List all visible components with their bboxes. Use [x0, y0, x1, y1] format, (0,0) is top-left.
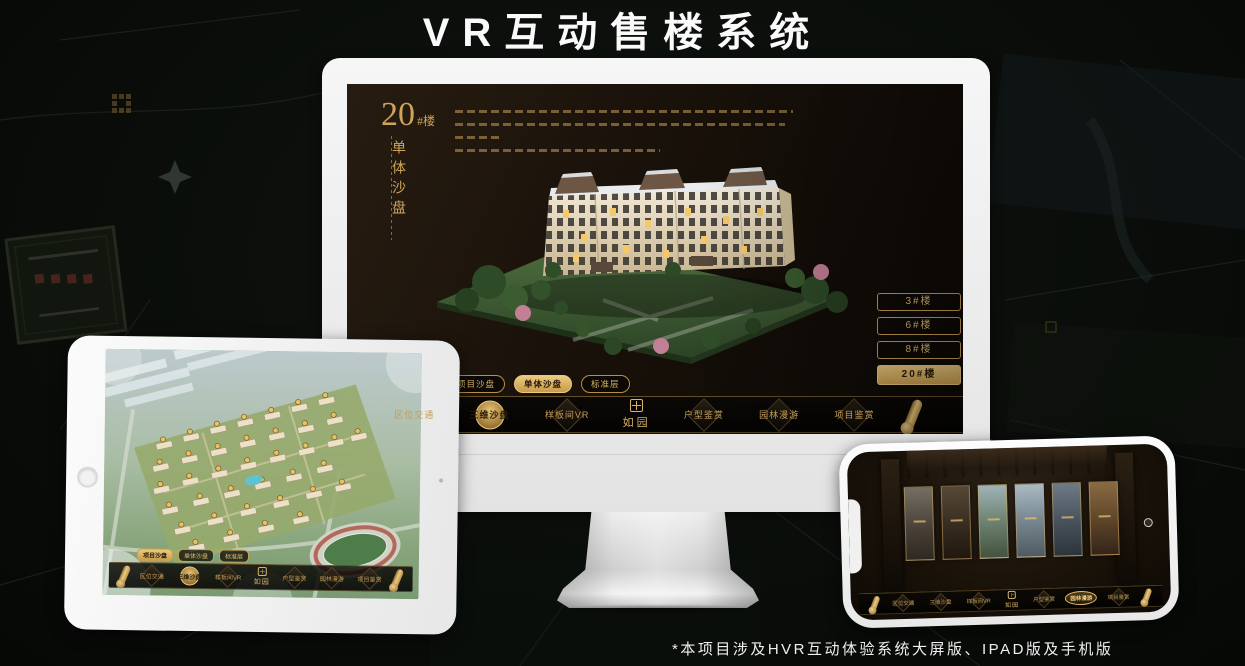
scene-card[interactable]	[941, 485, 972, 560]
scene-card[interactable]	[978, 484, 1009, 559]
scene-card-gallery	[904, 481, 1120, 561]
tab-single-building-sandbox[interactable]: 单体沙盘	[514, 375, 572, 393]
tab-standard-floor[interactable]: 标准层	[581, 375, 630, 393]
phone-camera-icon	[1144, 518, 1153, 527]
floor-button-20[interactable]: 20#楼	[877, 365, 961, 385]
tablet-tab-single-building-sandbox[interactable]: 单体沙盘	[178, 549, 214, 563]
nav-item-floorplans[interactable]: 户型鉴赏	[682, 404, 726, 425]
tablet-nav-item-showroom-vr[interactable]: 样板间VR	[214, 570, 243, 583]
compass-star-icon	[158, 160, 192, 194]
seal-icon	[257, 567, 266, 576]
interior-pillar-left	[881, 459, 903, 591]
tablet-device: 项目沙盘 单体沙盘 标准层 区位交通 三维沙盘 样板间VR 如园 户型鉴赏 园林…	[64, 335, 460, 634]
scene-card[interactable]	[1015, 483, 1046, 558]
phone-nav-item-project-gallery[interactable]: 项目鉴赏	[1106, 591, 1130, 604]
brand-logo: 如园	[623, 399, 651, 430]
phone-screen: 区位交通 三维沙盘 样板间VR 如园 户型鉴赏 园林漫游 项目鉴赏	[847, 444, 1172, 621]
seal-icon	[1008, 591, 1016, 599]
footnote-text: *本项目涉及HVR互动体验系统大屏版、IPAD版及手机版	[672, 638, 1113, 659]
scroll-icon[interactable]	[390, 568, 404, 589]
seal-icon	[630, 399, 643, 412]
title-divider	[391, 136, 392, 240]
tablet-nav-item-project-gallery[interactable]: 项目鉴赏	[356, 572, 382, 585]
nav-item-garden-tour[interactable]: 园林漫游	[757, 404, 801, 425]
tablet-sandbox-tabs: 项目沙盘 单体沙盘 标准层	[137, 548, 249, 563]
phone-nav-item-3d-sandbox[interactable]: 三维沙盘	[928, 596, 952, 609]
tablet-screen: 项目沙盘 单体沙盘 标准层 区位交通 三维沙盘 样板间VR 如园 户型鉴赏 园林…	[102, 349, 421, 599]
scene-card[interactable]	[904, 486, 935, 561]
tablet-nav-item-floorplans[interactable]: 户型鉴赏	[281, 571, 307, 584]
page-title: VR互动售楼系统	[0, 0, 1245, 58]
tablet-navbar: 区位交通 三维沙盘 样板间VR 如园 户型鉴赏 园林漫游 项目鉴赏	[109, 562, 413, 592]
brand-logo: 如园	[1005, 591, 1020, 609]
tablet-camera-icon	[439, 478, 443, 482]
background-logo-mark	[112, 94, 131, 113]
monitor-stand-shadow	[552, 604, 764, 614]
tablet-nav-item-garden-tour[interactable]: 园林漫游	[319, 571, 345, 584]
background-plaque	[6, 227, 126, 343]
scroll-icon[interactable]	[1141, 588, 1152, 605]
phone-notch	[848, 499, 862, 573]
nav-item-project-gallery[interactable]: 项目鉴赏	[832, 404, 876, 425]
phone-nav-item-showroom-vr[interactable]: 样板间VR	[965, 595, 991, 608]
tablet-tab-standard-floor[interactable]: 标准层	[219, 549, 249, 562]
monitor-stand	[557, 512, 759, 608]
building-3d-render	[423, 150, 889, 386]
tablet-tab-project-sandbox[interactable]: 项目沙盘	[137, 548, 173, 562]
phone-nav-item-garden-tour[interactable]: 园林漫游	[1069, 592, 1093, 605]
nav-item-3d-sandbox[interactable]: 三维沙盘	[468, 404, 512, 425]
tablet-home-button[interactable]	[77, 466, 98, 487]
phone-device: 区位交通 三维沙盘 样板间VR 如园 户型鉴赏 园林漫游 项目鉴赏	[838, 435, 1179, 628]
interior-ceiling-render	[907, 445, 1108, 479]
scroll-icon[interactable]	[870, 595, 881, 612]
scene-card[interactable]	[1052, 482, 1083, 557]
building-subtitle: 单体沙盘	[387, 140, 407, 240]
sandbox-tabs: 项目沙盘 单体沙盘 标准层	[447, 375, 630, 393]
building-number: 20#楼	[381, 98, 435, 132]
floor-button-6[interactable]: 6#楼	[877, 317, 961, 335]
floor-button-group: 3#楼 6#楼 8#楼 20#楼	[877, 293, 961, 385]
floor-button-8[interactable]: 8#楼	[877, 341, 961, 359]
scroll-icon[interactable]	[902, 398, 923, 431]
scene-card[interactable]	[1089, 481, 1120, 556]
page-canvas: VR互动售楼系统 20#楼 单体沙盘	[0, 0, 1245, 666]
tablet-nav-item-3d-sandbox[interactable]: 三维沙盘	[176, 569, 202, 582]
phone-navbar: 区位交通 三维沙盘 样板间VR 如园 户型鉴赏 园林漫游 项目鉴赏	[859, 585, 1163, 615]
brand-logo: 如园	[254, 567, 270, 587]
tablet-frame: 项目沙盘 单体沙盘 标准层 区位交通 三维沙盘 样板间VR 如园 户型鉴赏 园林…	[64, 335, 460, 634]
tablet-nav-item-location[interactable]: 区位交通	[139, 569, 165, 582]
nav-item-showroom-vr[interactable]: 样板间VR	[543, 404, 592, 425]
scroll-icon[interactable]	[117, 565, 131, 586]
phone-nav-item-location[interactable]: 区位交通	[891, 597, 915, 610]
phone-frame: 区位交通 三维沙盘 样板间VR 如园 户型鉴赏 园林漫游 项目鉴赏	[838, 435, 1179, 628]
floor-button-3[interactable]: 3#楼	[877, 293, 961, 311]
phone-nav-item-floorplans[interactable]: 户型鉴赏	[1032, 593, 1056, 606]
